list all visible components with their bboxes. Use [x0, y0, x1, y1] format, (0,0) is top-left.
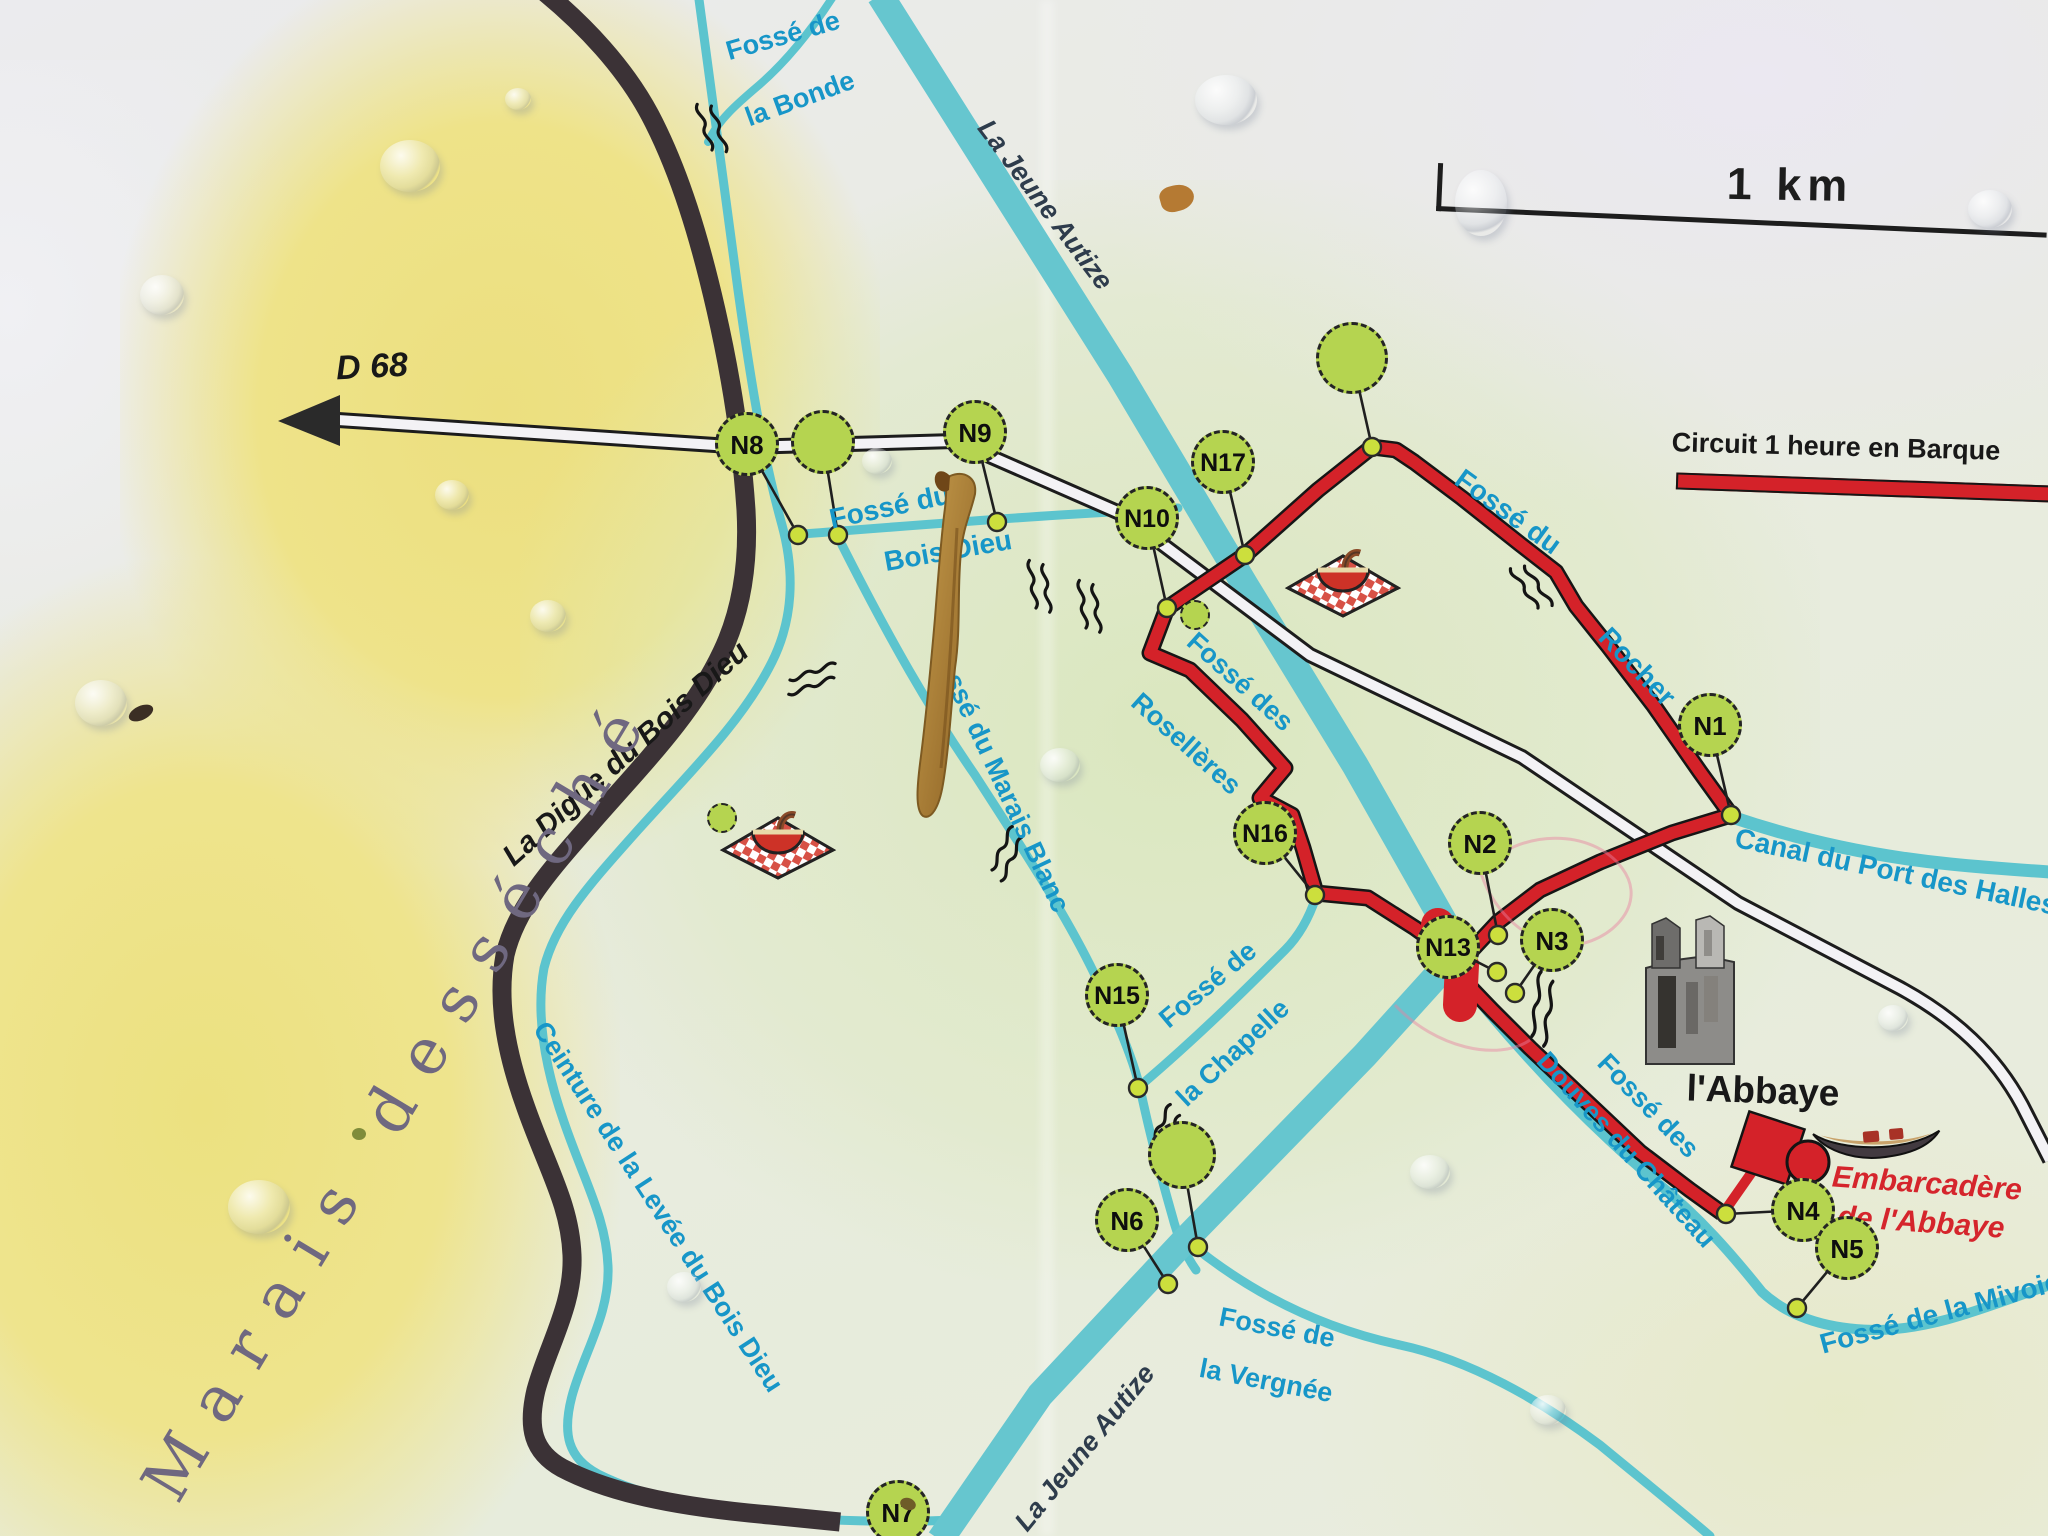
node-n13: N13: [1416, 915, 1480, 979]
seed-debris: [352, 1128, 366, 1140]
node-n4-label: N4: [1786, 1196, 1819, 1227]
node-n8-label: N8: [730, 430, 763, 461]
scale-bar-tick: [1436, 163, 1443, 211]
node-n1-label: N1: [1693, 711, 1726, 742]
road-arrowhead: [278, 395, 340, 446]
digue-line: [502, 0, 840, 1522]
node-n3: N3: [1520, 908, 1584, 972]
trail-marker-unlabeled-small: [707, 803, 737, 833]
node-n1: N1: [1678, 693, 1742, 757]
node-n15: N15: [1085, 963, 1149, 1027]
leaf-debris: [905, 468, 1015, 838]
node-n16: N16: [1233, 801, 1297, 865]
abbey-ruins-image: [1646, 916, 1734, 1064]
node-n8: N8: [715, 412, 779, 476]
node-n3-label: N3: [1535, 926, 1568, 957]
node-n10: N10: [1115, 486, 1179, 550]
node-n5: N5: [1815, 1216, 1879, 1280]
trail-marker-unlabeled-small: [1180, 600, 1210, 630]
node-n17-label: N17: [1200, 449, 1246, 478]
scale-bar-label: 1 km: [1726, 158, 1853, 212]
trail-marker-unlabeled: [1316, 322, 1388, 394]
picnic-basket-icon: [723, 814, 833, 878]
node-n9-label: N9: [958, 418, 991, 449]
road-label-d68: D 68: [335, 346, 409, 389]
node-n7: N7: [866, 1480, 930, 1536]
picnic-basket-icon: [1288, 552, 1398, 616]
node-n13-label: N13: [1425, 934, 1471, 963]
abbaye-label: l'Abbaye: [1686, 1067, 1840, 1114]
node-n17: N17: [1191, 430, 1255, 494]
node-n2: N2: [1448, 811, 1512, 875]
node-n2-label: N2: [1463, 829, 1496, 860]
node-n15-label: N15: [1094, 982, 1140, 1011]
node-n16-label: N16: [1242, 820, 1288, 849]
trail-marker-unlabeled: [791, 410, 855, 474]
node-n6-label: N6: [1110, 1206, 1143, 1237]
map-panel: Fossé de la Bonde La Jeune Autize D 68 F…: [0, 0, 2048, 1536]
trail-marker-unlabeled: [1148, 1121, 1216, 1189]
node-n6: N6: [1095, 1188, 1159, 1252]
node-n9: N9: [943, 400, 1007, 464]
node-n10-label: N10: [1124, 505, 1170, 534]
boat-icon: [1812, 1123, 1939, 1161]
node-n5-label: N5: [1830, 1234, 1863, 1265]
